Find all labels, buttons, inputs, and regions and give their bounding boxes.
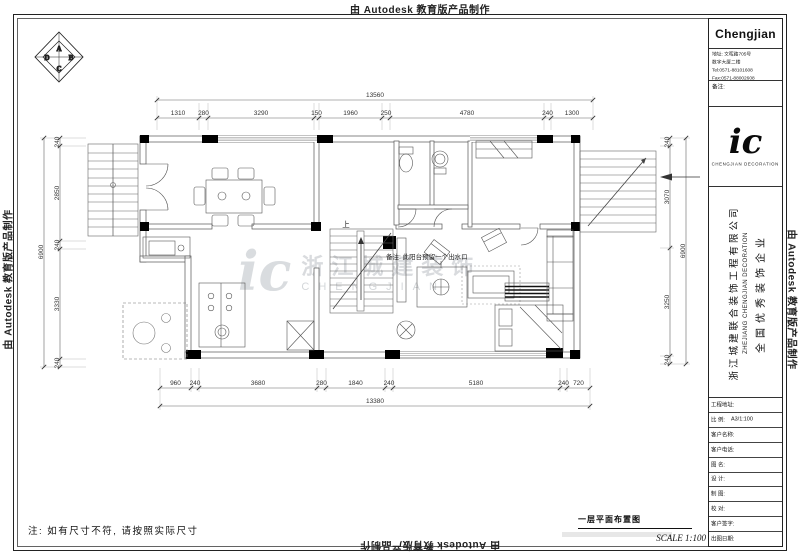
svg-text:3330: 3330 — [54, 296, 61, 311]
compass-a: A — [56, 45, 61, 53]
address-line-1: 地址: 文晖路705号 — [712, 52, 758, 57]
svg-text:1960: 1960 — [343, 110, 358, 117]
svg-text:150: 150 — [311, 110, 322, 117]
svg-text:3680: 3680 — [251, 380, 266, 387]
tel: Tel:0571-88101608 — [712, 68, 758, 73]
dimension-disclaimer-note: 注: 如有尺寸不符, 请按照实际尺寸 — [28, 523, 199, 537]
patio — [123, 303, 187, 359]
company-name: Chengjian — [709, 19, 782, 49]
autodesk-stamp-top: 由 Autodesk 教育版产品制作 — [20, 1, 800, 16]
title-block-form: 工程地址: 比 例:A3/1:100 客户名称: 客户电话: 图 名: 设 计:… — [709, 398, 782, 546]
svg-text:280: 280 — [316, 380, 327, 387]
svg-text:4780: 4780 — [460, 110, 475, 117]
closet — [476, 141, 532, 158]
fixtures — [143, 141, 532, 350]
svg-text:240: 240 — [384, 380, 395, 387]
sheet-frame — [14, 15, 787, 551]
svg-text:1310: 1310 — [171, 110, 186, 117]
dim-bottom-overall: 13380 — [366, 398, 384, 405]
fridge — [287, 321, 314, 350]
figure-scale: SCALE 1:100 — [560, 533, 706, 543]
form-row-client-signature: 客户签字: — [709, 517, 782, 532]
chengjian-logo-icon: ic — [729, 125, 763, 159]
svg-text:720: 720 — [573, 380, 584, 387]
compass-c: C — [56, 65, 61, 73]
stair-up-label: 上 — [342, 220, 350, 229]
planter-bay — [417, 267, 467, 307]
compass-b: B — [69, 54, 74, 62]
dining-set — [194, 168, 275, 226]
company-contact: 地址: 文晖路705号 数字大厦二楼 Tel:0571-88101608 Fax… — [709, 49, 782, 81]
svg-text:备注: 此阳台预留一个出水口: 备注: 此阳台预留一个出水口 — [386, 252, 468, 261]
form-row-drafting: 制 图: — [709, 487, 782, 502]
svg-text:240: 240 — [558, 380, 569, 387]
form-row-client-name: 客户名称: — [709, 428, 782, 443]
svg-text:1300: 1300 — [565, 110, 580, 117]
plan-note: 备注: 此阳台预留一个出水口 — [386, 252, 468, 268]
toilet — [399, 147, 413, 172]
svg-text:5180: 5180 — [469, 380, 484, 387]
svg-text:960: 960 — [170, 380, 181, 387]
svg-text:240: 240 — [54, 136, 61, 147]
windows — [218, 136, 546, 358]
extension-lines — [40, 96, 690, 410]
room-door — [521, 228, 538, 245]
drawing-sheet: ic 浙江城建装饰 CHENGJIAN A B C D — [0, 0, 800, 560]
l-sofa — [547, 230, 573, 321]
kitchen-island — [199, 283, 245, 347]
autodesk-stamp-left: 由 Autodesk 教育版产品制作 — [0, 180, 15, 380]
svg-text:240: 240 — [190, 380, 201, 387]
svg-text:3070: 3070 — [664, 189, 671, 204]
right-exterior-stair — [580, 151, 656, 232]
svg-text:3250: 3250 — [664, 294, 671, 309]
svg-text:240: 240 — [664, 354, 671, 365]
form-row-issue-date: 出图日期: — [709, 532, 782, 546]
company-en: ZHEJIANG CHENGJIAN DECORATION — [743, 232, 749, 354]
dim-left-overall: 6900 — [38, 244, 45, 259]
svg-text:240: 240 — [542, 110, 553, 117]
remark-cell: 备注: — [709, 81, 782, 107]
compass-icon: A B C D — [35, 32, 83, 82]
figure-title: 一层平面布置图 — [578, 514, 692, 529]
dim-right-overall: 6900 — [680, 243, 687, 258]
company-banner: 浙江城建联合装饰工程有限公司 ZHEJIANG CHENGJIAN DECORA… — [709, 187, 782, 398]
armchair-2 — [481, 228, 506, 252]
address-line-2: 数字大厦二楼 — [712, 60, 758, 65]
entry-door-leaf-1 — [146, 164, 168, 186]
left-exterior-stair — [88, 144, 138, 236]
form-row-check: 校 对: — [709, 502, 782, 517]
form-row-project-address: 工程地址: — [709, 398, 782, 413]
title-block: Chengjian 地址: 文晖路705号 数字大厦二楼 Tel:0571-88… — [708, 18, 783, 547]
form-row-client-phone: 客户电话: — [709, 443, 782, 458]
svg-text:3290: 3290 — [254, 110, 269, 117]
svg-text:240: 240 — [54, 239, 61, 250]
remark-label: 备注: — [712, 83, 725, 91]
form-row-design: 设 计: — [709, 473, 782, 488]
form-row-drawing-name: 图 名: — [709, 458, 782, 473]
logo-caption: CHENGJIAN DECORATION — [712, 162, 779, 166]
svg-text:240: 240 — [664, 136, 671, 147]
company-honor: 全国优秀装饰企业 — [752, 233, 767, 353]
svg-text:1840: 1840 — [348, 380, 363, 387]
svg-text:2850: 2850 — [54, 185, 61, 200]
form-row-scale: 比 例:A3/1:100 — [709, 413, 782, 428]
floor-plan-canvas: A B C D 13560 1 — [0, 0, 800, 560]
svg-text:250: 250 — [381, 110, 392, 117]
autodesk-stamp-right: 由 Autodesk 教育版产品制作 — [786, 200, 800, 400]
entry-door-leaf-2 — [146, 188, 168, 210]
company-logo: ic CHENGJIAN DECORATION — [709, 107, 782, 187]
dimension-ticks — [42, 98, 688, 408]
round-sink — [432, 151, 448, 174]
entry-arrow-icon — [660, 174, 700, 181]
svg-text:240: 240 — [54, 357, 61, 368]
compass-d: D — [44, 54, 49, 62]
wall-counter — [143, 237, 190, 258]
plant — [397, 321, 415, 339]
tv-cabinet — [397, 238, 406, 302]
svg-text:280: 280 — [198, 110, 209, 117]
company-cn: 浙江城建联合装饰工程有限公司 — [726, 206, 740, 381]
dim-top-overall: 13560 — [366, 92, 384, 99]
